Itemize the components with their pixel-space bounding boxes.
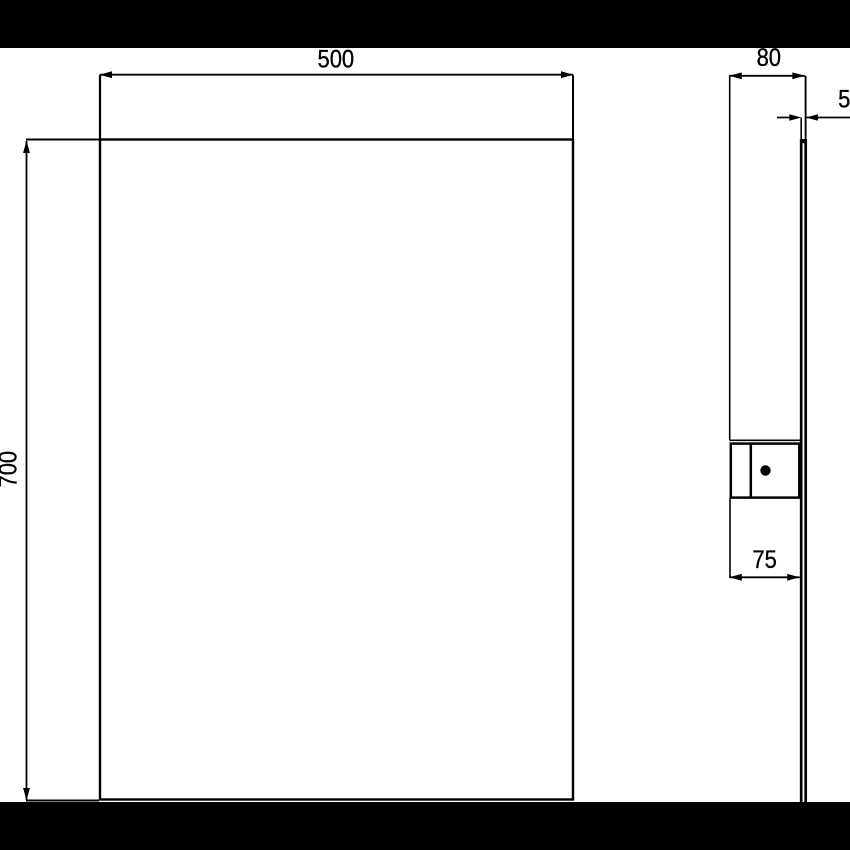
svg-text:80: 80 — [757, 44, 781, 72]
svg-text:75: 75 — [752, 546, 776, 574]
svg-text:500: 500 — [317, 45, 354, 73]
svg-text:5: 5 — [838, 85, 850, 113]
svg-text:700: 700 — [0, 451, 22, 488]
